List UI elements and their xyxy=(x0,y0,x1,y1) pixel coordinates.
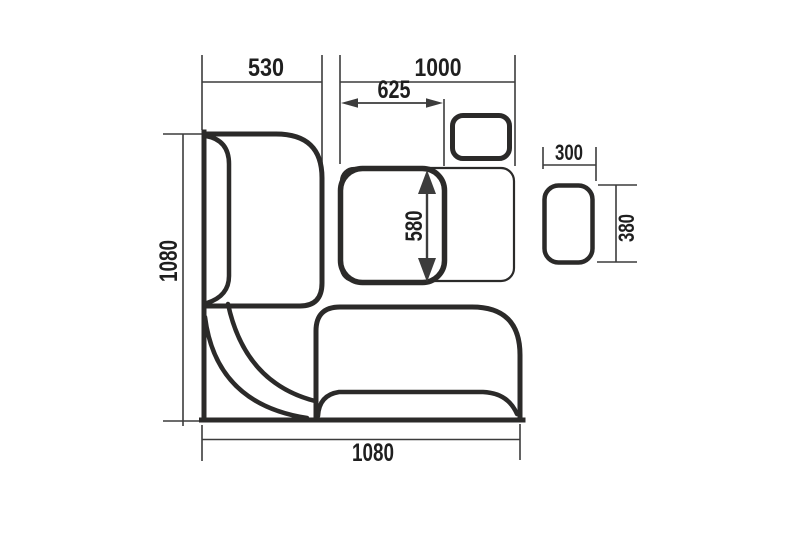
stool-right-outline xyxy=(545,186,593,263)
bench-bottom-seat-outline xyxy=(316,307,520,420)
label-625: 625 xyxy=(378,76,411,104)
arrow-left-icon xyxy=(341,98,358,108)
arrow-right-icon xyxy=(426,98,443,108)
bench-left-seat-outline xyxy=(204,134,322,306)
label-580: 580 xyxy=(401,211,428,242)
furniture-outlines xyxy=(202,116,593,421)
label-380: 380 xyxy=(614,214,639,242)
label-300: 300 xyxy=(555,140,583,165)
label-1080-bottom: 1080 xyxy=(352,439,394,467)
corner-seat-arc-inner xyxy=(228,304,315,401)
label-530: 530 xyxy=(248,54,284,82)
label-1080-left: 1080 xyxy=(155,240,183,282)
diagram-canvas: 530 1000 625 1080 1080 580 300 380 xyxy=(0,0,800,533)
label-1000: 1000 xyxy=(415,54,462,82)
stool-top-outline xyxy=(453,116,510,159)
furniture-diagram: 530 1000 625 1080 1080 580 300 380 xyxy=(0,0,800,533)
